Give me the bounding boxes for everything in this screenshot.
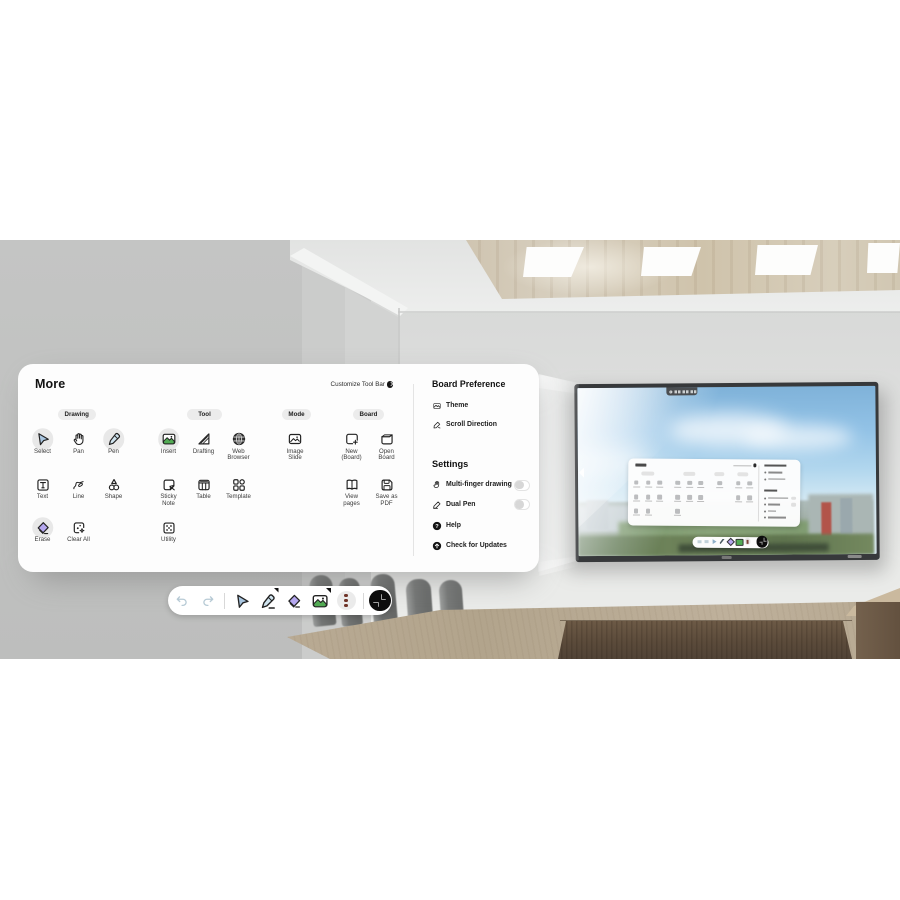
svg-text:?: ? — [435, 523, 439, 529]
